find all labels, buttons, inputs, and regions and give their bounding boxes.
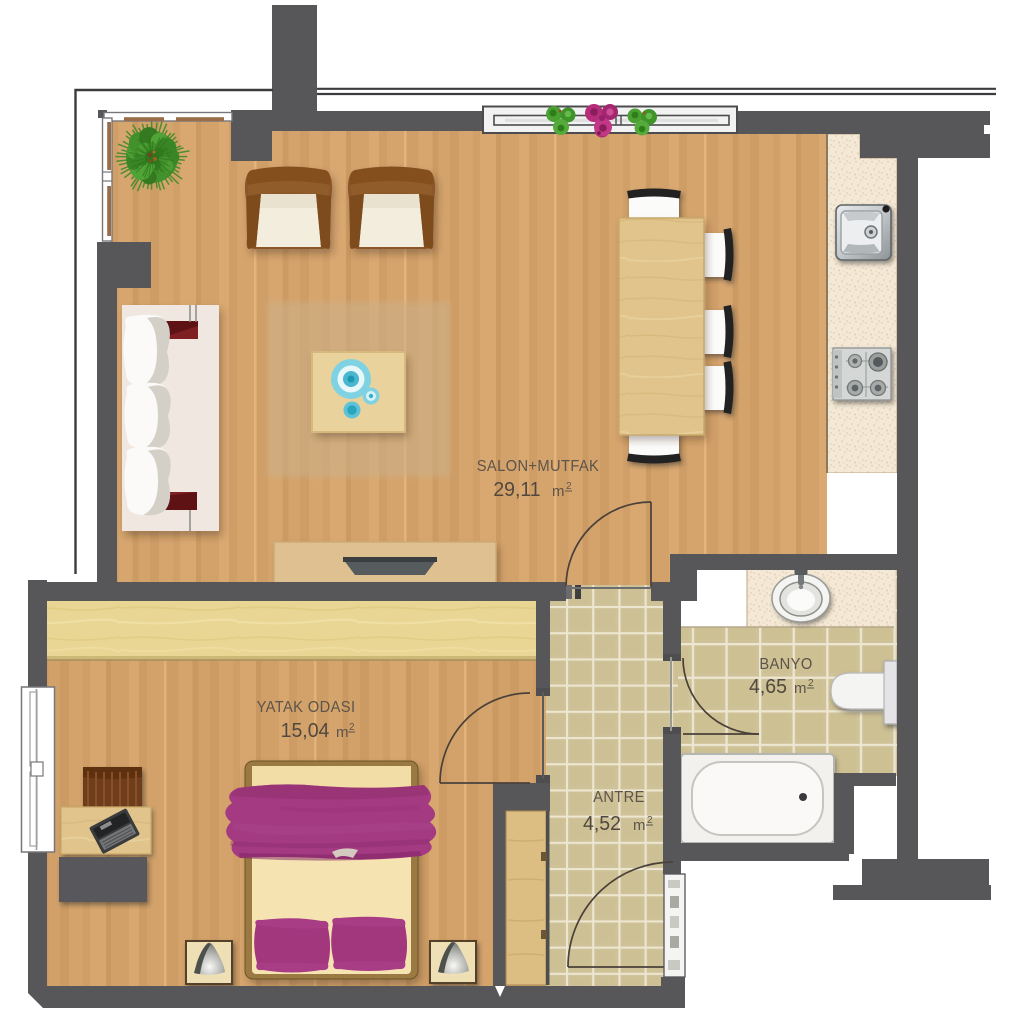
svg-text:29,11: 29,11 bbox=[493, 479, 540, 502]
svg-text:2: 2 bbox=[647, 815, 653, 826]
svg-text:15,04: 15,04 bbox=[281, 720, 330, 743]
svg-text:m: m bbox=[552, 483, 565, 500]
svg-text:YATAK ODASI: YATAK ODASI bbox=[257, 698, 356, 716]
svg-text:4,65: 4,65 bbox=[749, 676, 787, 699]
svg-text:2: 2 bbox=[349, 722, 355, 733]
svg-text:4,52: 4,52 bbox=[583, 813, 621, 836]
svg-text:m: m bbox=[633, 817, 646, 834]
svg-text:SALON+MUTFAK: SALON+MUTFAK bbox=[477, 457, 600, 475]
svg-text:m: m bbox=[336, 724, 349, 741]
svg-text:BANYO: BANYO bbox=[759, 655, 812, 673]
svg-text:ANTRE: ANTRE bbox=[593, 788, 645, 806]
svg-text:2: 2 bbox=[808, 678, 814, 689]
svg-text:m: m bbox=[794, 680, 807, 697]
svg-text:2: 2 bbox=[566, 481, 572, 492]
